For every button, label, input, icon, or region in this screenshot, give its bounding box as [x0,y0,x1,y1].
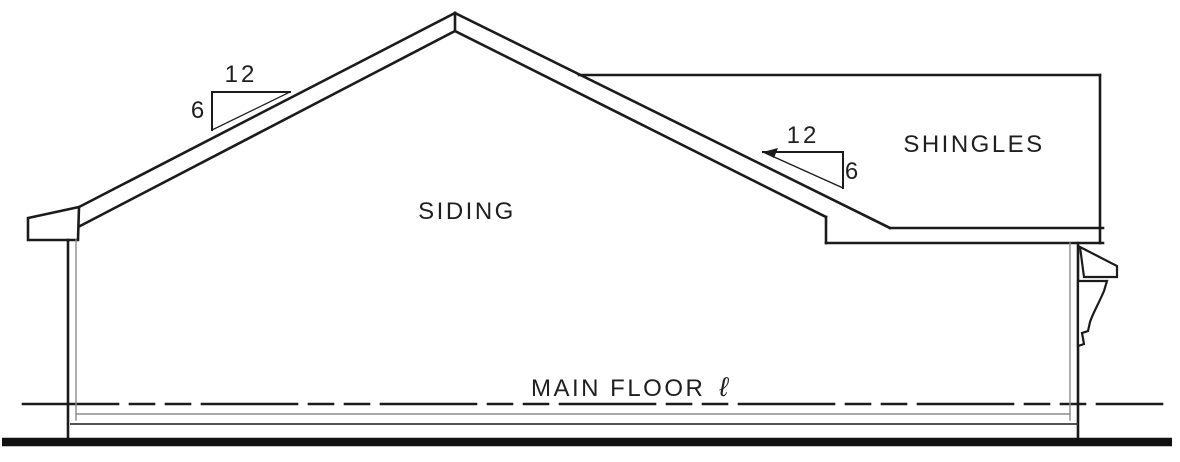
roof-outer-left [79,13,455,207]
pitch-left-rise-value: 6 [184,99,214,123]
siding-label: SIDING [367,200,567,224]
roof-inner-right [455,31,826,217]
main-floor-label: MAIN FLOOR [531,377,705,401]
pitch-right-run-value: 12 [772,124,834,148]
roof-inner-left [80,31,455,226]
main-floor-annotation: MAIN FLOOR ℓ [531,374,728,401]
pitch-left-run-value: 12 [210,63,272,87]
bracket-cap [1080,247,1117,277]
roof-outer-right [455,13,890,228]
pitch-right-arrowhead [763,148,778,158]
pitch-indicator-right [763,148,843,188]
elevation-drawing: 12 6 12 6 SIDING SHINGLES MAIN FLOOR ℓ [0,0,1180,462]
corbel-bracket [1078,281,1107,346]
shingles-label: SHINGLES [854,133,1094,157]
floor-level-symbol: ℓ [719,374,728,401]
pitch-right-rise-value: 6 [838,160,868,184]
left-fascia [28,207,79,240]
